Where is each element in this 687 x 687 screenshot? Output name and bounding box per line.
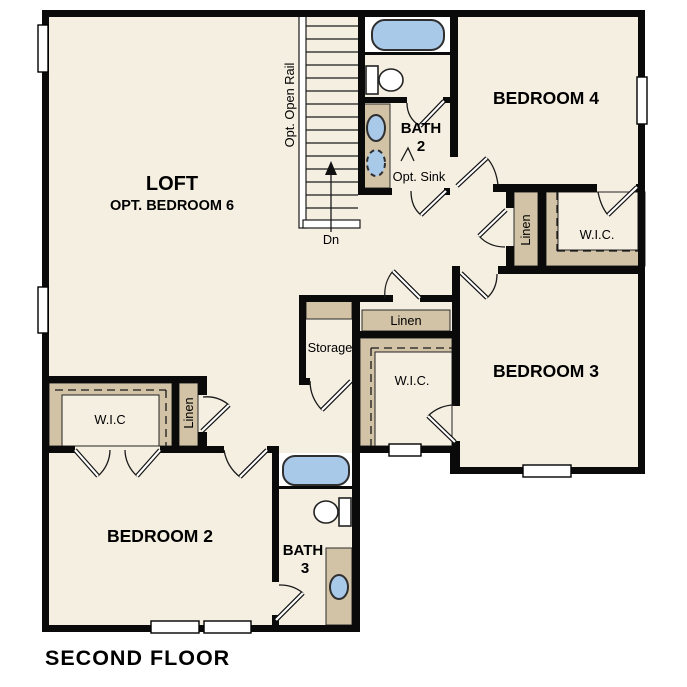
opt-sink-label: Opt. Sink [393,169,446,184]
wall-bath2-toilet [358,97,407,103]
wall-wic2-linen2-divider [172,383,179,446]
floor-plan-title: SECOND FLOOR [45,646,230,670]
bath2-optional-sink [367,150,385,176]
wall-storage-bottom-stub [299,378,310,385]
bath2-toilet-bowl [379,69,403,91]
wall-linen-hall-top-b [420,295,452,302]
window-bedroom2-bottom-right [204,621,251,633]
bedroom4-label: BEDROOM 4 [493,88,599,108]
wall-closet-row-top-a [493,184,597,192]
wic-bedroom2-label: W.I.C [94,412,125,427]
storage-label: Storage [308,340,353,355]
wall-bath3-right [352,446,360,632]
wall-bedroom2-top-b [160,446,224,453]
bath2-tub [372,20,444,50]
wall-linen4-left-upper [506,192,514,208]
window-wic3-bottom [389,444,421,456]
wall-below-linen-hall [356,331,452,338]
wall-bath3-left [272,453,279,582]
linen-upper-hall-label: Linen [518,214,533,245]
wall-linen4-left-lower [506,246,514,266]
bath3-toilet-tank [339,498,351,526]
window-bedroom3-bottom [523,465,571,477]
wall-bedroom3-left-lower [452,441,460,467]
bath3-toilet-bowl [314,501,338,523]
wall-exterior-bottom-left [42,625,360,632]
bath2-toilet-tank [366,66,378,94]
wall-bedroom2-top-a [42,446,75,453]
wall-wic2-top [42,376,205,383]
storage-shelf [306,300,352,319]
bath2-sink [367,115,385,141]
bath3-sink [330,575,348,599]
bath3-label-line2: 3 [301,560,309,577]
loft-subtitle: OPT. BEDROOM 6 [110,198,234,214]
bath3-label-line1: BATH [283,542,324,559]
wall-exterior-top [42,10,645,17]
window-loft-left-upper [38,25,48,72]
bath2-label-line1: BATH [401,120,442,137]
stairs-rail-label: Opt. Open Rail [282,63,297,148]
wall-closet-row-bottom [498,266,645,274]
bath2-tub-wall [365,52,450,55]
wall-bedroom3-left-upper [452,266,460,406]
window-bedroom4-right [637,77,647,124]
wall-bedroom4-left [450,10,458,157]
window-loft-left-lower [38,287,48,333]
wall-storage-right [352,302,360,446]
bath3-tub-wall [279,486,352,489]
floor-plan-page: LOFT OPT. BEDROOM 6 BEDROOM 4 BEDROOM 3 … [0,0,687,687]
wall-bath2-bottom [358,188,392,195]
wall-bedroom2-top-c [267,446,279,453]
linen-bedroom2-label: Linen [181,397,196,428]
window-bedroom2-bottom-left [151,621,199,633]
bedroom2-label: BEDROOM 2 [107,526,213,546]
wic-bedroom4-label: W.I.C. [580,227,615,242]
wall-storage-left [299,295,306,385]
loft-label: LOFT [146,173,198,195]
wic-bedroom3-floor [375,352,452,446]
stairs-down-label: Dn [323,232,339,247]
wall-storage-linen-top [299,295,393,302]
floor-plan-drawing: LOFT OPT. BEDROOM 6 BEDROOM 4 BEDROOM 3 … [0,0,687,687]
wall-linen2-right-upper [198,376,207,395]
wic-bedroom3-label: W.I.C. [395,373,430,388]
bedroom3-label: BEDROOM 3 [493,361,599,381]
linen-hall-label: Linen [390,313,421,328]
bath2-label-line2: 2 [417,138,425,155]
stair-rail [299,15,306,228]
wall-linen4-right [538,192,546,266]
bath3-tub [283,456,349,485]
